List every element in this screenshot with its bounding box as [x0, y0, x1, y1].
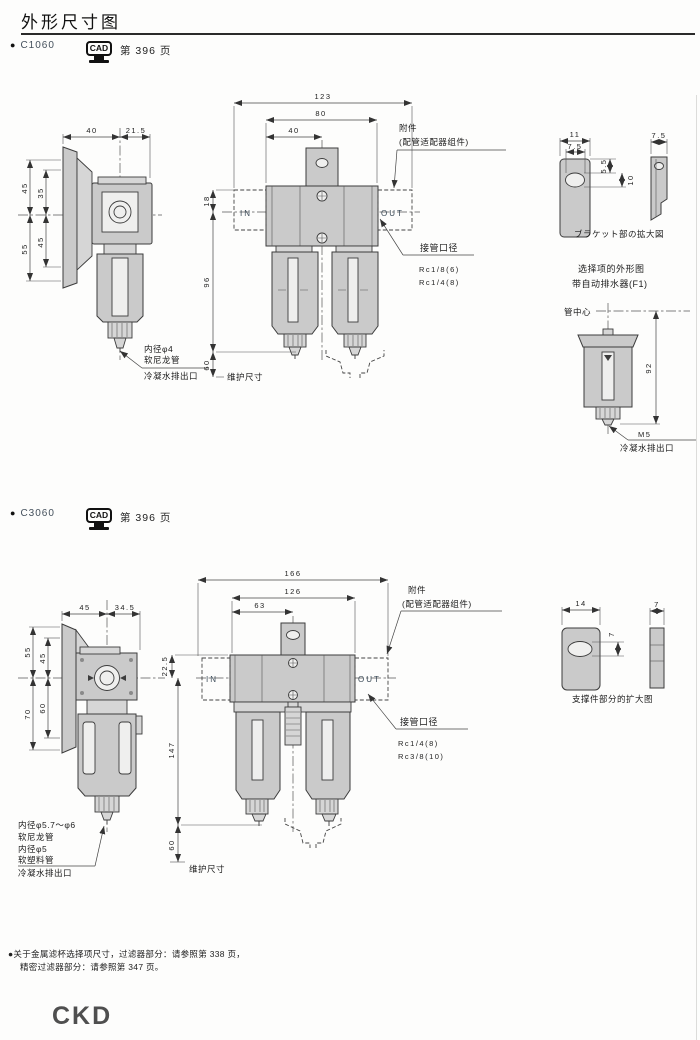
c1060-option-view: 选择项的外形图 带自动排水器(F1) 管中心 92 M5 冷凝水排出口 — [564, 263, 696, 453]
dim-side-left-outer-top: 45 — [20, 182, 29, 193]
model-label-c1060: ●C1060 — [10, 40, 55, 51]
dim-side-left-outer-top: 55 — [23, 646, 32, 657]
dim-side-left-inner-bottom: 45 — [36, 236, 45, 247]
maintenance-label: 维护尺寸 — [227, 372, 263, 382]
dim-side-left-outer-bottom: 55 — [20, 243, 29, 254]
bracket-caption: 支撑件部分的扩大图 — [572, 694, 653, 704]
dim-side-left-inner-bottom: 60 — [38, 702, 47, 713]
accessory-label-1: 附件 — [399, 123, 417, 133]
dim-bracket-side-w: 7 — [654, 600, 660, 609]
c1060-bracket-detail: 11 7.5 5.5 10 7.5 ブラケット部の拡大図 — [560, 130, 667, 239]
dim-side-top2: 34.5 — [115, 603, 136, 612]
dim-bracket-side-w: 7.5 — [652, 131, 667, 140]
dim-bracket-w: 14 — [575, 599, 586, 608]
side-note-1: 内径φ5.7～φ6 — [18, 820, 76, 830]
side-note-3: 内径φ5 — [18, 844, 47, 854]
dim-front-half-width: 63 — [254, 601, 265, 610]
dim-bracket-h2: 10 — [626, 174, 635, 185]
side-note-tube: 软尼龙管 — [144, 355, 180, 365]
dim-front-h-body: 96 — [202, 276, 211, 287]
dim-front-h-top: 18 — [202, 195, 211, 206]
dim-front-body-width: 126 — [284, 587, 301, 596]
dim-front-h-maint: 60 — [202, 359, 211, 370]
page-title: 外形尺寸图 — [21, 8, 121, 33]
maintenance-label: 维护尺寸 — [189, 864, 225, 874]
model-label-c3060: ●C3060 — [10, 508, 55, 519]
c3060-side-view: 45 34.5 55 70 45 60 内径φ5.7～φ6 软尼龙管 内径φ5 … — [18, 600, 165, 878]
option-thread-label: M5 — [638, 430, 651, 439]
dim-bracket-w: 11 — [570, 130, 581, 139]
bullet-icon: ● — [10, 40, 16, 50]
cad-base-icon — [89, 60, 109, 63]
page-ref-c3060: 第 396 页 — [120, 510, 171, 525]
out-port-label: OUT — [381, 209, 404, 218]
side-note-4: 软塑料管 — [18, 855, 54, 865]
page-ref-c1060: 第 396 页 — [120, 43, 171, 58]
c3060-drawing: 45 34.5 55 70 45 60 内径φ5.7～φ6 软尼龙管 内径φ5 … — [0, 560, 700, 890]
dim-bracket-w-inner: 7.5 — [568, 142, 583, 151]
dim-option-height: 92 — [644, 362, 653, 373]
cad-base-icon — [89, 527, 109, 530]
side-note-5: 冷凝水排出口 — [18, 868, 72, 878]
dim-side-top1: 40 — [86, 126, 97, 135]
out-port-label: OUT — [358, 675, 381, 684]
side-note-2: 软尼龙管 — [18, 832, 54, 842]
port-size-2: Rc3/8(10) — [398, 752, 444, 761]
dim-bracket-hole-h: 7 — [607, 631, 616, 637]
cad-link-icon[interactable]: CAD — [84, 505, 114, 530]
bullet-icon: ● — [10, 508, 16, 518]
cad-screen-icon: CAD — [86, 41, 112, 56]
side-note-drain: 冷凝水排出口 — [144, 371, 198, 381]
c1060-drawing: 40 21.5 45 55 35 45 内径φ4 软尼龙管 冷凝水排出口 IN … — [0, 85, 700, 495]
c1060-side-view: 40 21.5 45 55 35 45 内径φ4 软尼龙管 冷凝水排出口 — [18, 126, 208, 381]
option-title-1: 选择项的外形图 — [578, 263, 645, 274]
accessory-label-1: 附件 — [408, 585, 426, 595]
bracket-caption: ブラケット部の拡大図 — [574, 229, 664, 239]
port-title: 接管口径 — [420, 242, 458, 253]
dim-side-left-inner-top: 45 — [38, 652, 47, 663]
option-drain-label: 冷凝水排出口 — [620, 443, 674, 453]
title-rule — [21, 33, 695, 35]
footer-note-1: ●关于金属滤杯选择项尺寸，过滤器部分：请参照第 338 页， — [8, 948, 245, 961]
dim-front-h-maint: 60 — [167, 839, 176, 850]
dim-side-top1: 45 — [79, 603, 90, 612]
section-header-c1060: ●C1060 — [10, 40, 55, 51]
dim-front-h-body: 147 — [167, 741, 176, 758]
dim-side-top2: 21.5 — [126, 126, 147, 135]
port-size-1: Rc1/8(6) — [419, 265, 460, 274]
in-port-label: IN — [206, 675, 218, 684]
section-header-c3060: ●C3060 — [10, 508, 55, 519]
dim-front-h-top: 22.5 — [160, 656, 169, 677]
dim-front-total-width: 166 — [284, 569, 301, 578]
ckd-logo: CKD — [52, 1002, 112, 1031]
pipe-center-label: 管中心 — [564, 307, 591, 317]
dim-bracket-h1: 5.5 — [599, 159, 608, 174]
port-size-1: Rc1/4(8) — [398, 739, 439, 748]
c3060-bracket-detail: 14 7 7 支撑件部分的扩大图 — [562, 599, 664, 704]
port-title: 接管口径 — [400, 716, 438, 727]
footer-note-2: 精密过滤器部分：请参照第 347 页。 — [20, 961, 164, 974]
port-size-2: Rc1/4(8) — [419, 278, 460, 287]
dim-side-left-outer-bottom: 70 — [23, 708, 32, 719]
dim-front-body-width: 80 — [315, 109, 326, 118]
in-port-label: IN — [240, 209, 252, 218]
option-title-2: 带自动排水器(F1) — [572, 278, 648, 289]
side-note-bore: 内径φ4 — [144, 344, 173, 354]
dim-front-half-width: 40 — [288, 126, 299, 135]
cad-screen-icon: CAD — [86, 508, 112, 523]
dim-side-left-inner-top: 35 — [36, 187, 45, 198]
c1060-front-view: IN OUT 123 80 40 18 — [202, 92, 506, 382]
accessory-label-2: (配管适配器组件) — [399, 137, 469, 147]
accessory-label-2: (配管适配器组件) — [402, 599, 472, 609]
c3060-front-view: IN OUT 166 126 63 22 — [160, 569, 502, 874]
cad-link-icon[interactable]: CAD — [84, 38, 114, 63]
dim-front-total-width: 123 — [314, 92, 331, 101]
